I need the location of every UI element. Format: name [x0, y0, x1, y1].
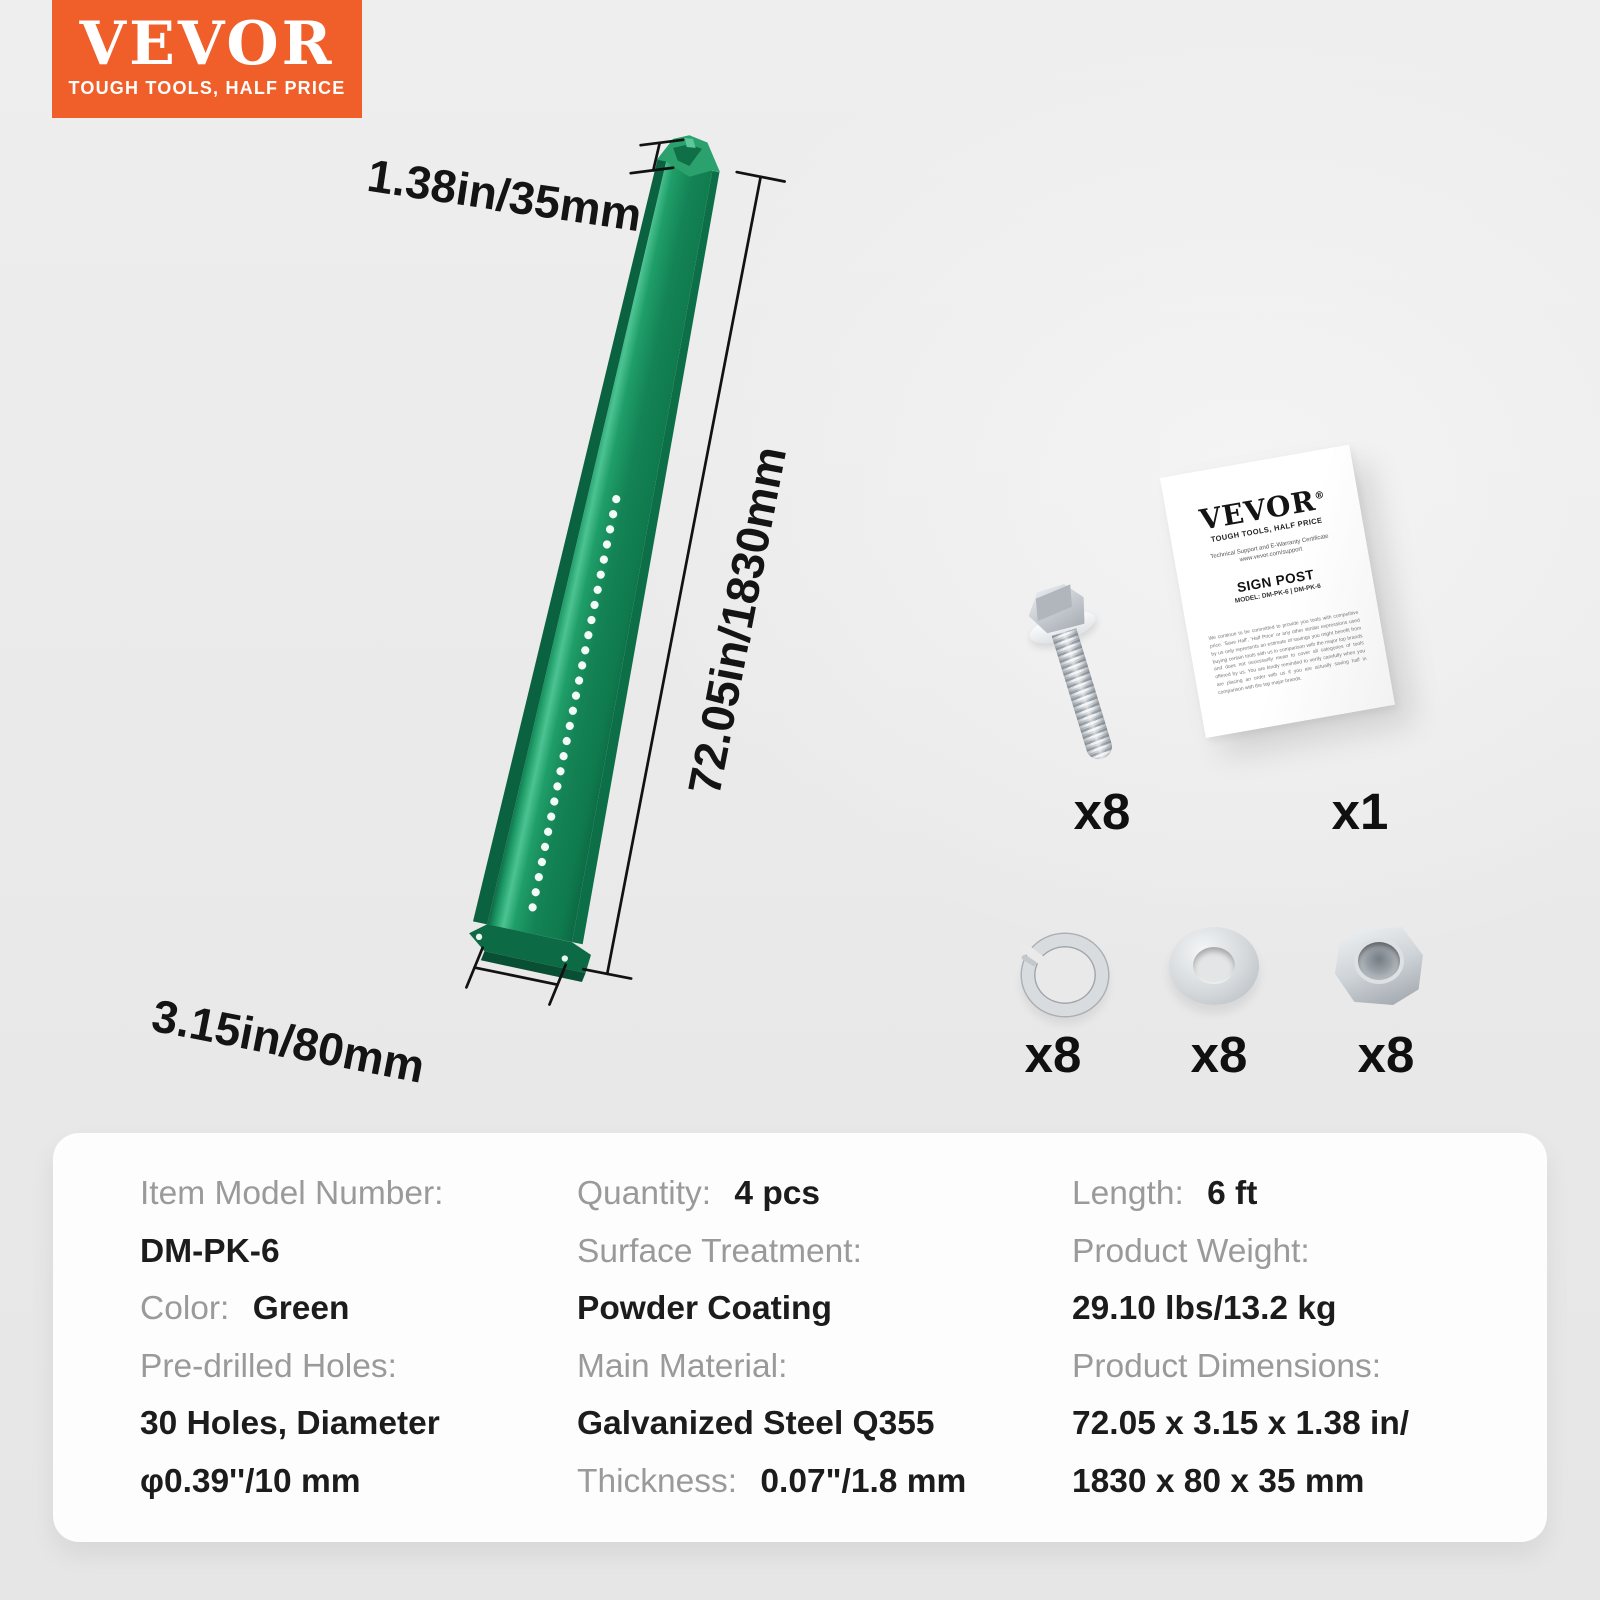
instruction-manual: VEVOR® TOUGH TOOLS, HALF PRICE Technical…: [1160, 445, 1395, 738]
spec-column-3: Length: 6 ft Product Weight: 29.10 lbs/1…: [1072, 1165, 1409, 1510]
bolt-threaded-shaft: [1052, 628, 1115, 762]
spec-surface-treatment-value: Powder Coating: [577, 1280, 966, 1338]
flat-washer-hole: [1193, 947, 1235, 984]
spec-quantity: Quantity: 4 pcs: [577, 1165, 966, 1223]
spring-washer-quantity: x8: [983, 1029, 1123, 1081]
spring-washer: [1022, 934, 1108, 1016]
spec-product-dimensions-mm: 1830 x 80 x 35 mm: [1072, 1453, 1409, 1511]
manual-disclaimer: We continue to be committed to provide y…: [1208, 610, 1368, 697]
vevor-logo: VEVOR TOUGH TOOLS, HALF PRICE: [52, 0, 362, 118]
hex-nut: [1335, 927, 1423, 1005]
spec-product-weight: Product Weight:: [1072, 1223, 1409, 1281]
spec-holes-diameter: φ0.39''/10 mm: [140, 1453, 443, 1511]
spec-column-2: Quantity: 4 pcs Surface Treatment: Powde…: [577, 1165, 966, 1510]
spec-column-1: Item Model Number: DM-PK-6 Color: Green …: [140, 1165, 443, 1510]
flat-washer: [1169, 927, 1259, 1005]
brand-name: VEVOR: [52, 14, 362, 74]
registered-mark: ®: [1314, 490, 1327, 503]
hex-nut-quantity: x8: [1316, 1029, 1456, 1081]
spec-item-model-number: Item Model Number:: [140, 1165, 443, 1223]
brand-tagline: TOUGH TOOLS, HALF PRICE: [52, 78, 362, 99]
bolt-quantity: x8: [1032, 786, 1172, 838]
hex-bolt: [1001, 573, 1155, 783]
spec-holes-count: 30 Holes, Diameter: [140, 1395, 443, 1453]
spec-color: Color: Green: [140, 1280, 443, 1338]
spec-main-material: Main Material:: [577, 1338, 966, 1396]
spec-model-value: DM-PK-6: [140, 1223, 443, 1281]
spec-main-material-value: Galvanized Steel Q355: [577, 1395, 966, 1453]
specifications-panel: Item Model Number: DM-PK-6 Color: Green …: [53, 1133, 1547, 1542]
spec-product-weight-value: 29.10 lbs/13.2 kg: [1072, 1280, 1409, 1338]
sign-post-diagram: [360, 110, 840, 1130]
hex-nut-hole: [1358, 942, 1400, 980]
flat-washer-quantity: x8: [1149, 1029, 1289, 1081]
product-infographic: VEVOR TOUGH TOOLS, HALF PRICE: [0, 0, 1600, 1600]
spec-predrilled-holes: Pre-drilled Holes:: [140, 1338, 443, 1396]
spec-product-dimensions: Product Dimensions:: [1072, 1338, 1409, 1396]
spec-thickness: Thickness: 0.07"/1.8 mm: [577, 1453, 966, 1511]
green-u-channel-post: [469, 135, 720, 982]
spec-product-dimensions-in: 72.05 x 3.15 x 1.38 in/: [1072, 1395, 1409, 1453]
manual-quantity: x1: [1290, 786, 1430, 838]
spec-surface-treatment: Surface Treatment:: [577, 1223, 966, 1281]
spec-length: Length: 6 ft: [1072, 1165, 1409, 1223]
